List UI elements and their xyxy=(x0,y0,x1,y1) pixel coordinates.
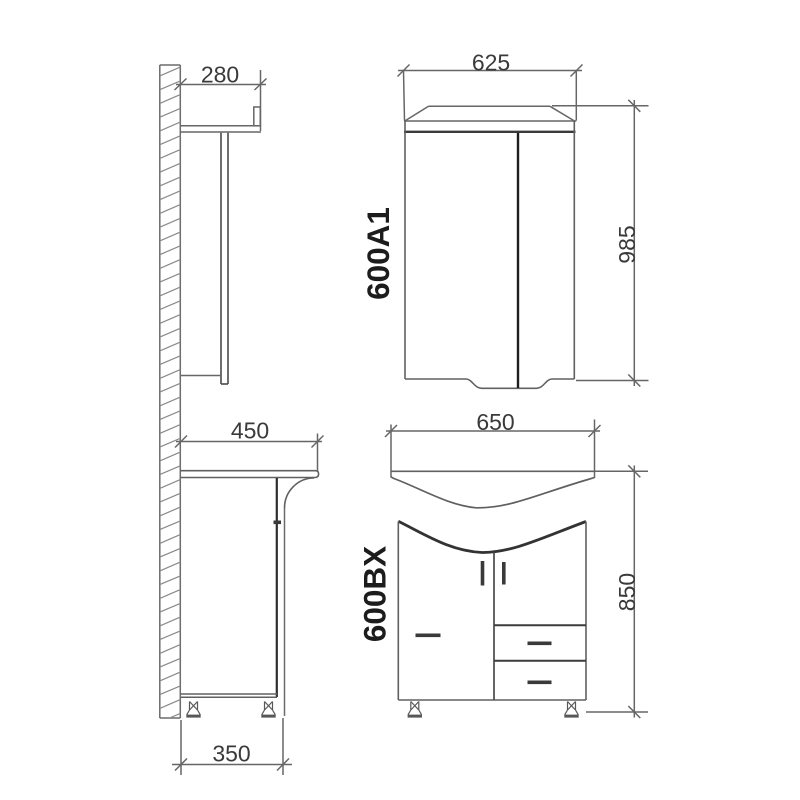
svg-text:625: 625 xyxy=(472,50,510,76)
svg-text:650: 650 xyxy=(476,409,514,435)
svg-text:280: 280 xyxy=(201,62,239,88)
svg-text:850: 850 xyxy=(614,573,640,611)
svg-text:600BX: 600BX xyxy=(357,546,393,642)
svg-text:985: 985 xyxy=(614,225,640,263)
svg-text:450: 450 xyxy=(231,418,269,444)
svg-text:350: 350 xyxy=(212,741,250,767)
svg-text:600A1: 600A1 xyxy=(360,207,396,300)
